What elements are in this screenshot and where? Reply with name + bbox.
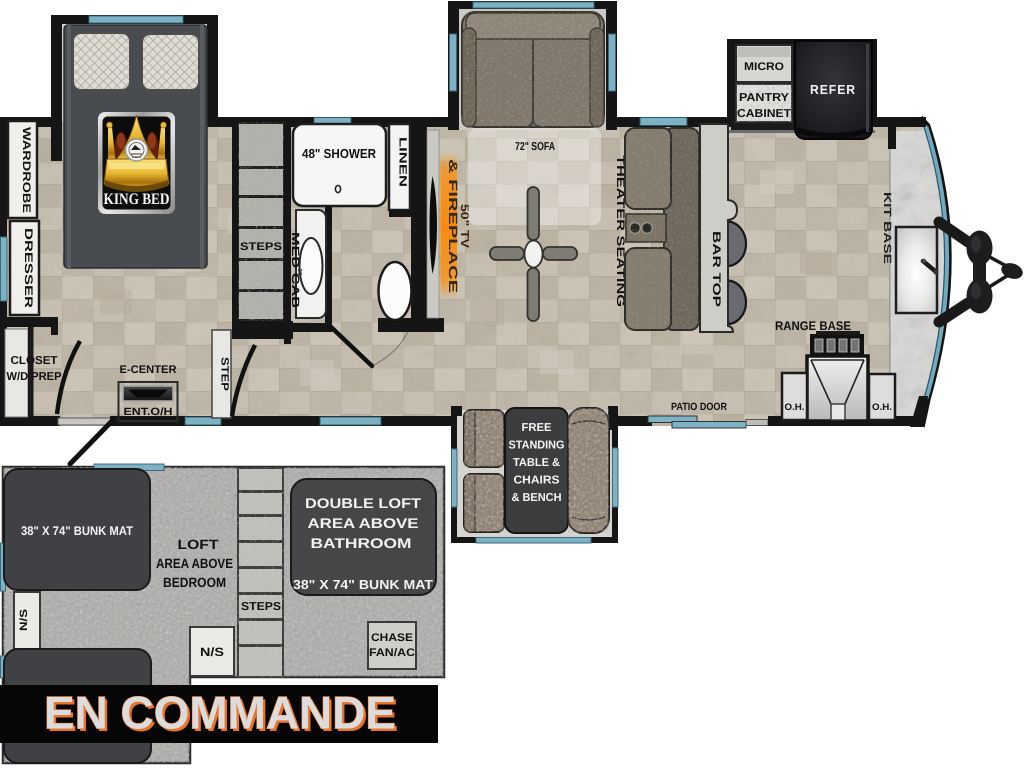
svg-text:DRESSER: DRESSER [22, 228, 34, 308]
svg-text:DOUBLE LOFT: DOUBLE LOFT [305, 495, 422, 511]
svg-text:72" SOFA: 72" SOFA [515, 141, 555, 153]
svg-text:EN COMMANDE: EN COMMANDE [44, 687, 396, 739]
svg-text:CLOSET: CLOSET [11, 355, 58, 367]
svg-text:RANGE BASE: RANGE BASE [775, 319, 851, 333]
svg-text:STANDING: STANDING [509, 440, 565, 452]
svg-text:KING BED: KING BED [104, 191, 170, 208]
svg-text:ENT.O/H: ENT.O/H [124, 406, 173, 418]
svg-text:CHAIRS: CHAIRS [514, 475, 560, 487]
svg-text:MED CAB: MED CAB [289, 232, 301, 309]
svg-text:& FIREPLACE: & FIREPLACE [446, 159, 460, 293]
svg-text:W/D PREP: W/D PREP [7, 371, 62, 383]
svg-text:STEP: STEP [219, 357, 231, 391]
svg-text:O.H.: O.H. [785, 402, 805, 413]
svg-text:BAR TOP: BAR TOP [710, 231, 722, 307]
svg-text:BEDROOM: BEDROOM [163, 575, 226, 590]
svg-text:REFER: REFER [810, 82, 856, 97]
svg-text:N/S: N/S [200, 645, 224, 659]
svg-text:STEPS: STEPS [241, 601, 281, 613]
svg-text:E-CENTER: E-CENTER [120, 364, 177, 376]
svg-text:CABINET: CABINET [737, 108, 791, 120]
svg-text:AREA ABOVE: AREA ABOVE [156, 556, 233, 571]
svg-text:PANTRY: PANTRY [739, 92, 789, 104]
svg-text:N/S: N/S [18, 609, 30, 631]
svg-text:38" X 74" BUNK MAT: 38" X 74" BUNK MAT [21, 524, 133, 538]
svg-text:BATHROOM: BATHROOM [311, 535, 412, 551]
svg-text:LOFT: LOFT [178, 537, 220, 552]
svg-text:PATIO DOOR: PATIO DOOR [671, 401, 727, 413]
svg-text:WARDROBE: WARDROBE [20, 127, 32, 213]
svg-text:38" X 74" BUNK MAT: 38" X 74" BUNK MAT [293, 577, 433, 592]
svg-text:LINEN: LINEN [397, 137, 409, 187]
svg-text:O.H.: O.H. [872, 402, 892, 413]
svg-text:KIT BASE: KIT BASE [881, 192, 893, 264]
svg-text:STEPS: STEPS [240, 241, 282, 253]
svg-text:FAN/AC: FAN/AC [369, 647, 415, 659]
svg-text:AREA ABOVE: AREA ABOVE [308, 515, 419, 531]
svg-text:48" SHOWER: 48" SHOWER [302, 146, 377, 161]
svg-text:CHASE: CHASE [371, 632, 413, 644]
svg-text:TABLE &: TABLE & [513, 457, 560, 469]
svg-text:FREE: FREE [522, 422, 552, 434]
svg-text:MICRO: MICRO [744, 61, 784, 73]
svg-text:& BENCH: & BENCH [512, 492, 562, 504]
